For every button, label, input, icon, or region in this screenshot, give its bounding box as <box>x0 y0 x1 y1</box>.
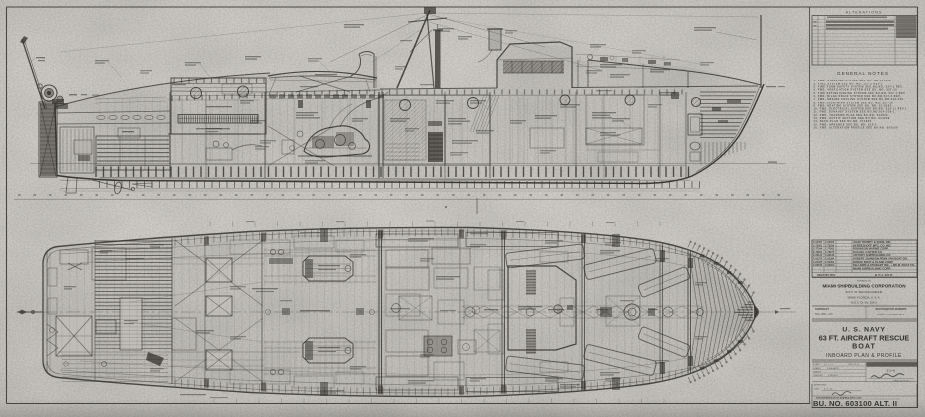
svg-text:ALTERATIONS: ALTERATIONS <box>846 11 883 15</box>
svg-text:8. FWD. LIGHTNING SYSTEM SEE B: 8. FWD. LIGHTNING SYSTEM SEE BU. NO. 327… <box>814 102 894 104</box>
svg-text:DATE: DATE <box>814 388 820 391</box>
svg-text:1. FWD. STEERING SYSTEM SEE BU: 1. FWD. STEERING SYSTEM SEE BU. NO.52735… <box>814 80 892 82</box>
svg-text:MIAMI SHIPBUILDING CORPORATI: MIAMI SHIPBUILDING CORPORATION <box>822 284 906 289</box>
svg-text:3/4" = 1'-0": 3/4" = 1'-0" <box>824 364 834 366</box>
svg-text:8-10-45: 8-10-45 <box>887 370 896 373</box>
svg-text:6. FWD. BILGE DRAIN SYSTEM SEE: 6. FWD. BILGE DRAIN SYSTEM SEE BU.NO.527… <box>814 95 902 98</box>
svg-text:NOs. 483s - 170: NOs. 483s - 170 <box>815 313 833 316</box>
svg-text:INBOARD PLAN & PROFILE: INBOARD PLAN & PROFILE <box>826 353 902 359</box>
svg-text:4. FWD. VENTILATION SYSTEM SEE: 4. FWD. VENTILATION SYSTEM SEE BU. NO. 3… <box>814 89 898 92</box>
svg-text:C-64467 — C-82201 INCL.: C-64467 — C-82201 INCL. <box>877 314 905 316</box>
svg-text:16. FWD. ALTERATION PROFILE: 16. FWD. ALTERATION PROFILE SEE BU.NO. 6… <box>814 127 899 130</box>
svg-text:7. FWD. ENGINE COOLING SYSTEM: 7. FWD. ENGINE COOLING SYSTEM SEE BU.NO.… <box>814 98 904 101</box>
svg-text:BOAT: BOAT <box>852 341 876 350</box>
svg-text:14. DECK PLAN SEE BU.NO. 51: 14. DECK PLAN SEE BU.NO. 514204 <box>814 120 872 123</box>
svg-text:TRACED: TRACED <box>813 370 822 373</box>
svg-text:M.S.C. Dr. No. 514-2: M.S.C. Dr. No. 514-2 <box>851 301 877 305</box>
svg-text:SCALE: SCALE <box>813 363 820 366</box>
svg-text:3. FIRE FOAM SAFETY SYSTEM SEE: 3. FIRE FOAM SAFETY SYSTEM SEE BU.NO. 52… <box>814 86 904 89</box>
svg-text:BOAT REGISTRY NUMBERS: BOAT REGISTRY NUMBERS <box>876 308 907 311</box>
svg-text:MIAMI, FLORIDA, U. S. A.: MIAMI, FLORIDA, U. S. A. <box>848 295 881 299</box>
svg-text:12. FWD. TRANSOM PLAN SEE B: 12. FWD. TRANSOM PLAN SEE BU.NO. 514200 <box>814 114 889 117</box>
svg-text:8 - 7 - 45: 8 - 7 - 45 <box>824 389 833 391</box>
svg-text:GENERAL NOTES: GENERAL NOTES <box>837 71 889 76</box>
svg-text:615 S. W. SECOND AVENUE: 615 S. W. SECOND AVENUE <box>846 290 883 294</box>
svg-text:DRAWN: DRAWN <box>813 367 821 370</box>
svg-text:DATE 1-8-45: DATE 1-8-45 <box>848 363 859 366</box>
svg-text:PREPARED BY: PREPARED BY <box>857 280 872 283</box>
svg-text:11. FWD. EXHAUST SYSTEM SEE BU: 11. FWD. EXHAUST SYSTEM SEE BU.NO.514-22… <box>814 111 896 114</box>
svg-text:NAVAL ARCHITECT: NAVAL ARCHITECT <box>893 379 911 382</box>
svg-text:9. FWD. HEATING SYSTEM SEE BU.: 9. FWD. HEATING SYSTEM SEE BU. NO. 21-30… <box>814 104 892 107</box>
svg-text:CONTRACT: CONTRACT <box>815 308 829 311</box>
svg-text:P. BUNCH: P. BUNCH <box>828 375 838 377</box>
svg-text:10. FWD. ELECTRICAL SYSTEM SEE: 10. FWD. ELECTRICAL SYSTEM SEE BU.NO. 51… <box>814 108 908 111</box>
svg-text:F. HEGARTY: F. HEGARTY <box>827 367 840 370</box>
svg-text:15. FWD. ARRANGE SEE BU. NO.: 15. FWD. ARRANGE SEE BU. NO. 514-2 <box>814 123 877 126</box>
svg-text:13. FWD. OUTFIT SECTION SEE: 13. FWD. OUTFIT SECTION SEE BU.NO. 51420… <box>814 117 890 120</box>
svg-text:APPROVED: APPROVED <box>814 384 827 387</box>
svg-text:REGISTRY NOS.: REGISTRY NOS. <box>817 274 836 277</box>
svg-text:U. S. NAVY: U. S. NAVY <box>842 327 885 334</box>
svg-text:5. FIRE EXTINGUISHING SYSTEM S: 5. FIRE EXTINGUISHING SYSTEM SEE BU.NO. … <box>814 93 907 95</box>
svg-text:CHECKED: CHECKED <box>813 375 823 377</box>
svg-text:BUILDER: BUILDER <box>875 273 893 277</box>
svg-text:2. FUEL SYSTEM SEE BU. NO. 327: 2. FUEL SYSTEM SEE BU. NO. 327-2 REV.1 <box>814 83 884 85</box>
